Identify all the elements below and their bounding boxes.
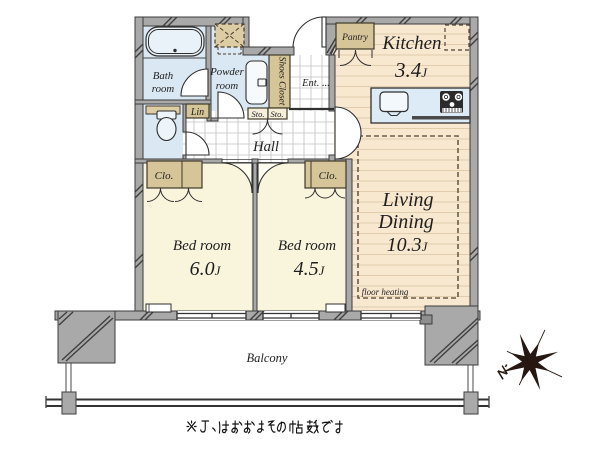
svg-text:Hall: Hall (252, 139, 279, 155)
svg-text:Powder: Powder (209, 66, 244, 78)
svg-text:Bed room: Bed room (173, 238, 231, 254)
svg-text:room: room (216, 80, 239, 92)
svg-text:floor heating: floor heating (362, 287, 409, 297)
svg-text:room: room (152, 83, 175, 95)
svg-text:Clo.: Clo. (319, 170, 338, 182)
svg-text:Sto.: Sto. (252, 109, 265, 119)
svg-text:Sto.: Sto. (271, 109, 284, 119)
svg-text:Bath: Bath (153, 70, 173, 82)
svg-text:Ent. ...: Ent. ... (301, 78, 330, 89)
svg-text:Lin: Lin (190, 107, 204, 118)
svg-text:Balcony: Balcony (247, 351, 288, 365)
svg-text:Living: Living (381, 189, 433, 211)
svg-text:Pantry: Pantry (341, 33, 369, 43)
svg-text:Bed room: Bed room (278, 238, 336, 254)
svg-text:Kitchen: Kitchen (381, 33, 441, 54)
svg-text:Dining: Dining (377, 211, 434, 233)
svg-text:Shoes Closet: Shoes Closet (277, 57, 287, 106)
svg-text:Clo.: Clo. (155, 170, 174, 182)
